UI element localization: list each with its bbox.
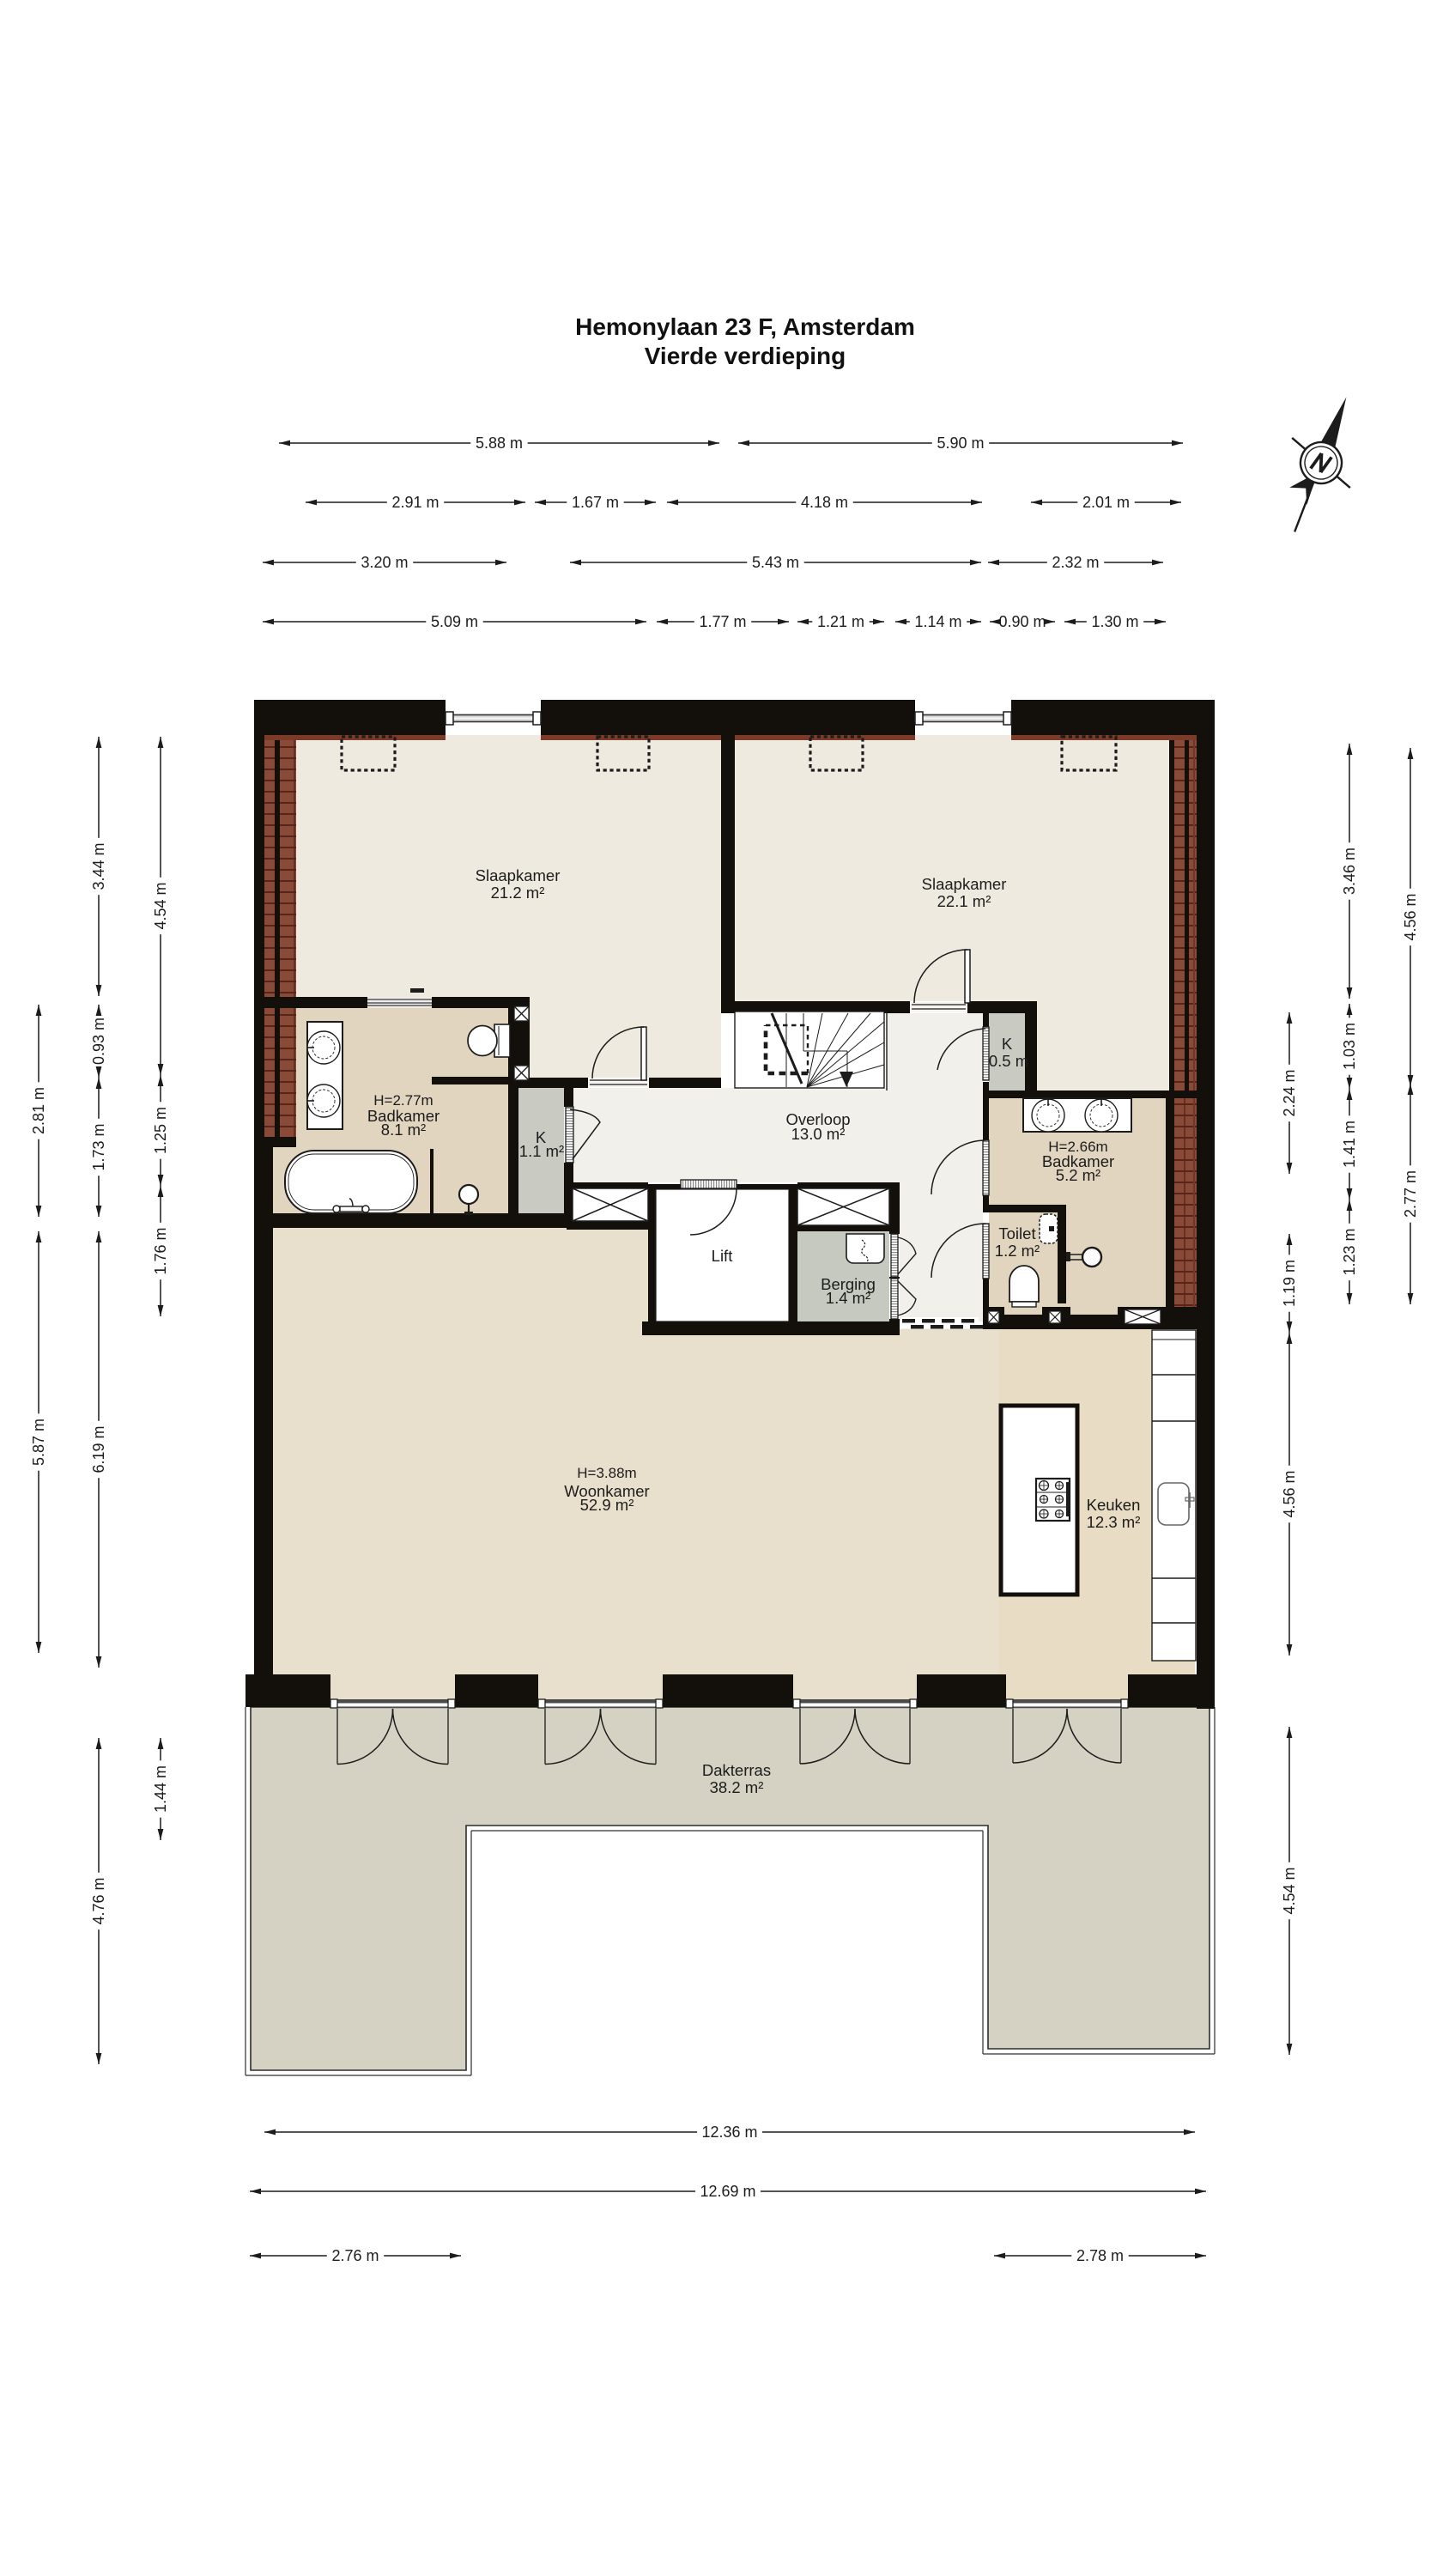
svg-text:1.4 m²: 1.4 m² bbox=[826, 1289, 870, 1307]
svg-text:1.14 m: 1.14 m bbox=[914, 613, 961, 630]
svg-text:2.24 m: 2.24 m bbox=[1281, 1069, 1298, 1116]
svg-text:1.25 m: 1.25 m bbox=[152, 1107, 169, 1154]
svg-text:38.2 m²: 38.2 m² bbox=[710, 1778, 764, 1796]
svg-text:1.23 m: 1.23 m bbox=[1341, 1228, 1358, 1275]
svg-text:Dakterras: Dakterras bbox=[702, 1761, 771, 1779]
svg-text:2.01 m: 2.01 m bbox=[1082, 494, 1130, 511]
svg-text:Slaapkamer: Slaapkamer bbox=[476, 866, 561, 884]
svg-text:2.78 m: 2.78 m bbox=[1076, 2247, 1124, 2264]
svg-text:1.76 m: 1.76 m bbox=[152, 1227, 169, 1274]
svg-text:12.36 m: 12.36 m bbox=[701, 2123, 757, 2141]
svg-text:12.69 m: 12.69 m bbox=[700, 2183, 755, 2200]
svg-text:4.54 m: 4.54 m bbox=[1281, 1867, 1298, 1914]
svg-text:1.73 m: 1.73 m bbox=[90, 1123, 107, 1170]
svg-text:1.03 m: 1.03 m bbox=[1341, 1023, 1358, 1070]
svg-text:3.46 m: 3.46 m bbox=[1341, 848, 1358, 895]
svg-text:1.21 m: 1.21 m bbox=[817, 613, 864, 630]
svg-text:5.2 m²: 5.2 m² bbox=[1056, 1166, 1100, 1184]
svg-text:1.41 m: 1.41 m bbox=[1341, 1121, 1358, 1168]
svg-text:5.09 m: 5.09 m bbox=[431, 613, 478, 630]
svg-text:6.19 m: 6.19 m bbox=[90, 1425, 107, 1473]
svg-text:1.67 m: 1.67 m bbox=[572, 494, 619, 511]
svg-text:5.88 m: 5.88 m bbox=[476, 434, 523, 452]
svg-text:8.1 m²: 8.1 m² bbox=[381, 1121, 426, 1139]
svg-text:4.76 m: 4.76 m bbox=[90, 1877, 107, 1924]
svg-text:2.91 m: 2.91 m bbox=[391, 494, 439, 511]
svg-text:1.1 m²: 1.1 m² bbox=[519, 1142, 564, 1160]
svg-text:0.90 m: 0.90 m bbox=[998, 613, 1046, 630]
svg-text:4.54 m: 4.54 m bbox=[152, 882, 169, 929]
svg-text:21.2 m²: 21.2 m² bbox=[491, 884, 545, 902]
svg-text:5.43 m: 5.43 m bbox=[752, 554, 799, 571]
svg-text:13.0 m²: 13.0 m² bbox=[791, 1125, 846, 1143]
svg-text:0.93 m: 0.93 m bbox=[90, 1018, 107, 1065]
svg-text:4.56 m: 4.56 m bbox=[1281, 1470, 1298, 1517]
svg-text:3.44 m: 3.44 m bbox=[90, 842, 107, 890]
svg-text:Slaapkamer: Slaapkamer bbox=[922, 875, 1007, 893]
svg-text:2.32 m: 2.32 m bbox=[1052, 554, 1099, 571]
svg-text:Hemonylaan 23 F, Amsterdam: Hemonylaan 23 F, Amsterdam bbox=[575, 313, 915, 340]
svg-text:Keuken: Keuken bbox=[1087, 1496, 1141, 1514]
svg-text:4.56 m: 4.56 m bbox=[1402, 893, 1419, 940]
svg-text:1.2 m²: 1.2 m² bbox=[995, 1242, 1040, 1260]
svg-text:H=3.88m: H=3.88m bbox=[577, 1465, 636, 1481]
svg-text:52.9 m²: 52.9 m² bbox=[580, 1496, 634, 1514]
svg-text:1.19 m: 1.19 m bbox=[1281, 1260, 1298, 1307]
svg-text:3.20 m: 3.20 m bbox=[361, 554, 408, 571]
svg-text:2.76 m: 2.76 m bbox=[331, 2247, 379, 2264]
svg-text:2.81 m: 2.81 m bbox=[30, 1087, 47, 1134]
svg-text:1.77 m: 1.77 m bbox=[699, 613, 746, 630]
svg-text:0.5 m: 0.5 m bbox=[989, 1052, 1028, 1070]
svg-text:Lift: Lift bbox=[712, 1247, 733, 1265]
svg-text:Toilet: Toilet bbox=[998, 1224, 1035, 1242]
svg-text:Vierde verdieping: Vierde verdieping bbox=[645, 343, 846, 369]
svg-text:22.1 m²: 22.1 m² bbox=[937, 892, 991, 910]
svg-text:5.87 m: 5.87 m bbox=[30, 1419, 47, 1466]
svg-text:4.18 m: 4.18 m bbox=[801, 494, 848, 511]
svg-text:1.44 m: 1.44 m bbox=[152, 1765, 169, 1813]
svg-text:2.77 m: 2.77 m bbox=[1402, 1170, 1419, 1218]
svg-text:12.3 m²: 12.3 m² bbox=[1087, 1513, 1141, 1531]
svg-text:1.30 m: 1.30 m bbox=[1091, 613, 1138, 630]
svg-text:5.90 m: 5.90 m bbox=[937, 434, 984, 452]
svg-text:K: K bbox=[1002, 1035, 1013, 1053]
